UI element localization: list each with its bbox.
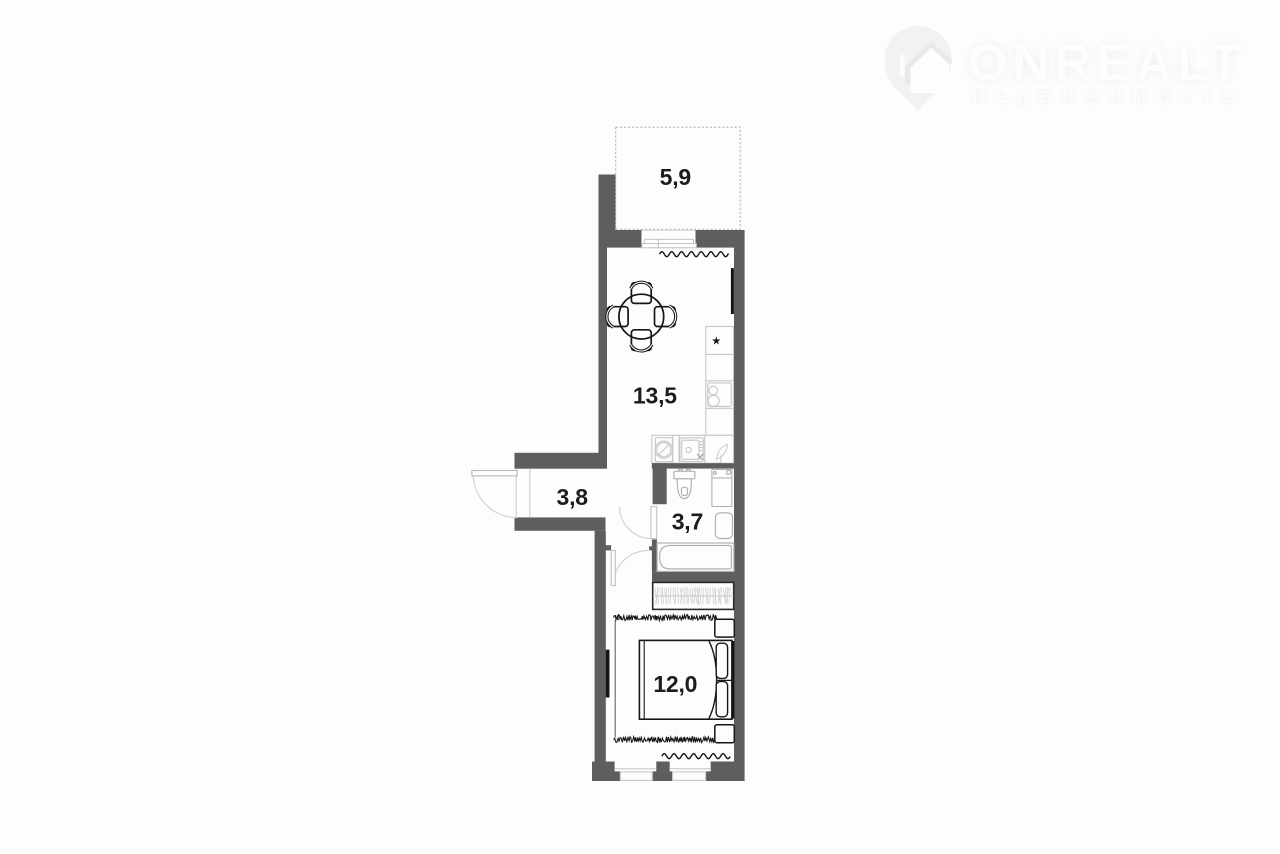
svg-text:3,7: 3,7 [672,509,703,535]
svg-text:3,8: 3,8 [557,484,589,510]
svg-text:НЕДВИЖИМОСТЬ: НЕДВИЖИМОСТЬ [973,89,1246,106]
svg-text:5,9: 5,9 [660,164,691,190]
svg-text:13,5: 13,5 [633,383,677,409]
svg-text:ONREALT: ONREALT [968,34,1246,91]
svg-text:12,0: 12,0 [653,671,697,697]
